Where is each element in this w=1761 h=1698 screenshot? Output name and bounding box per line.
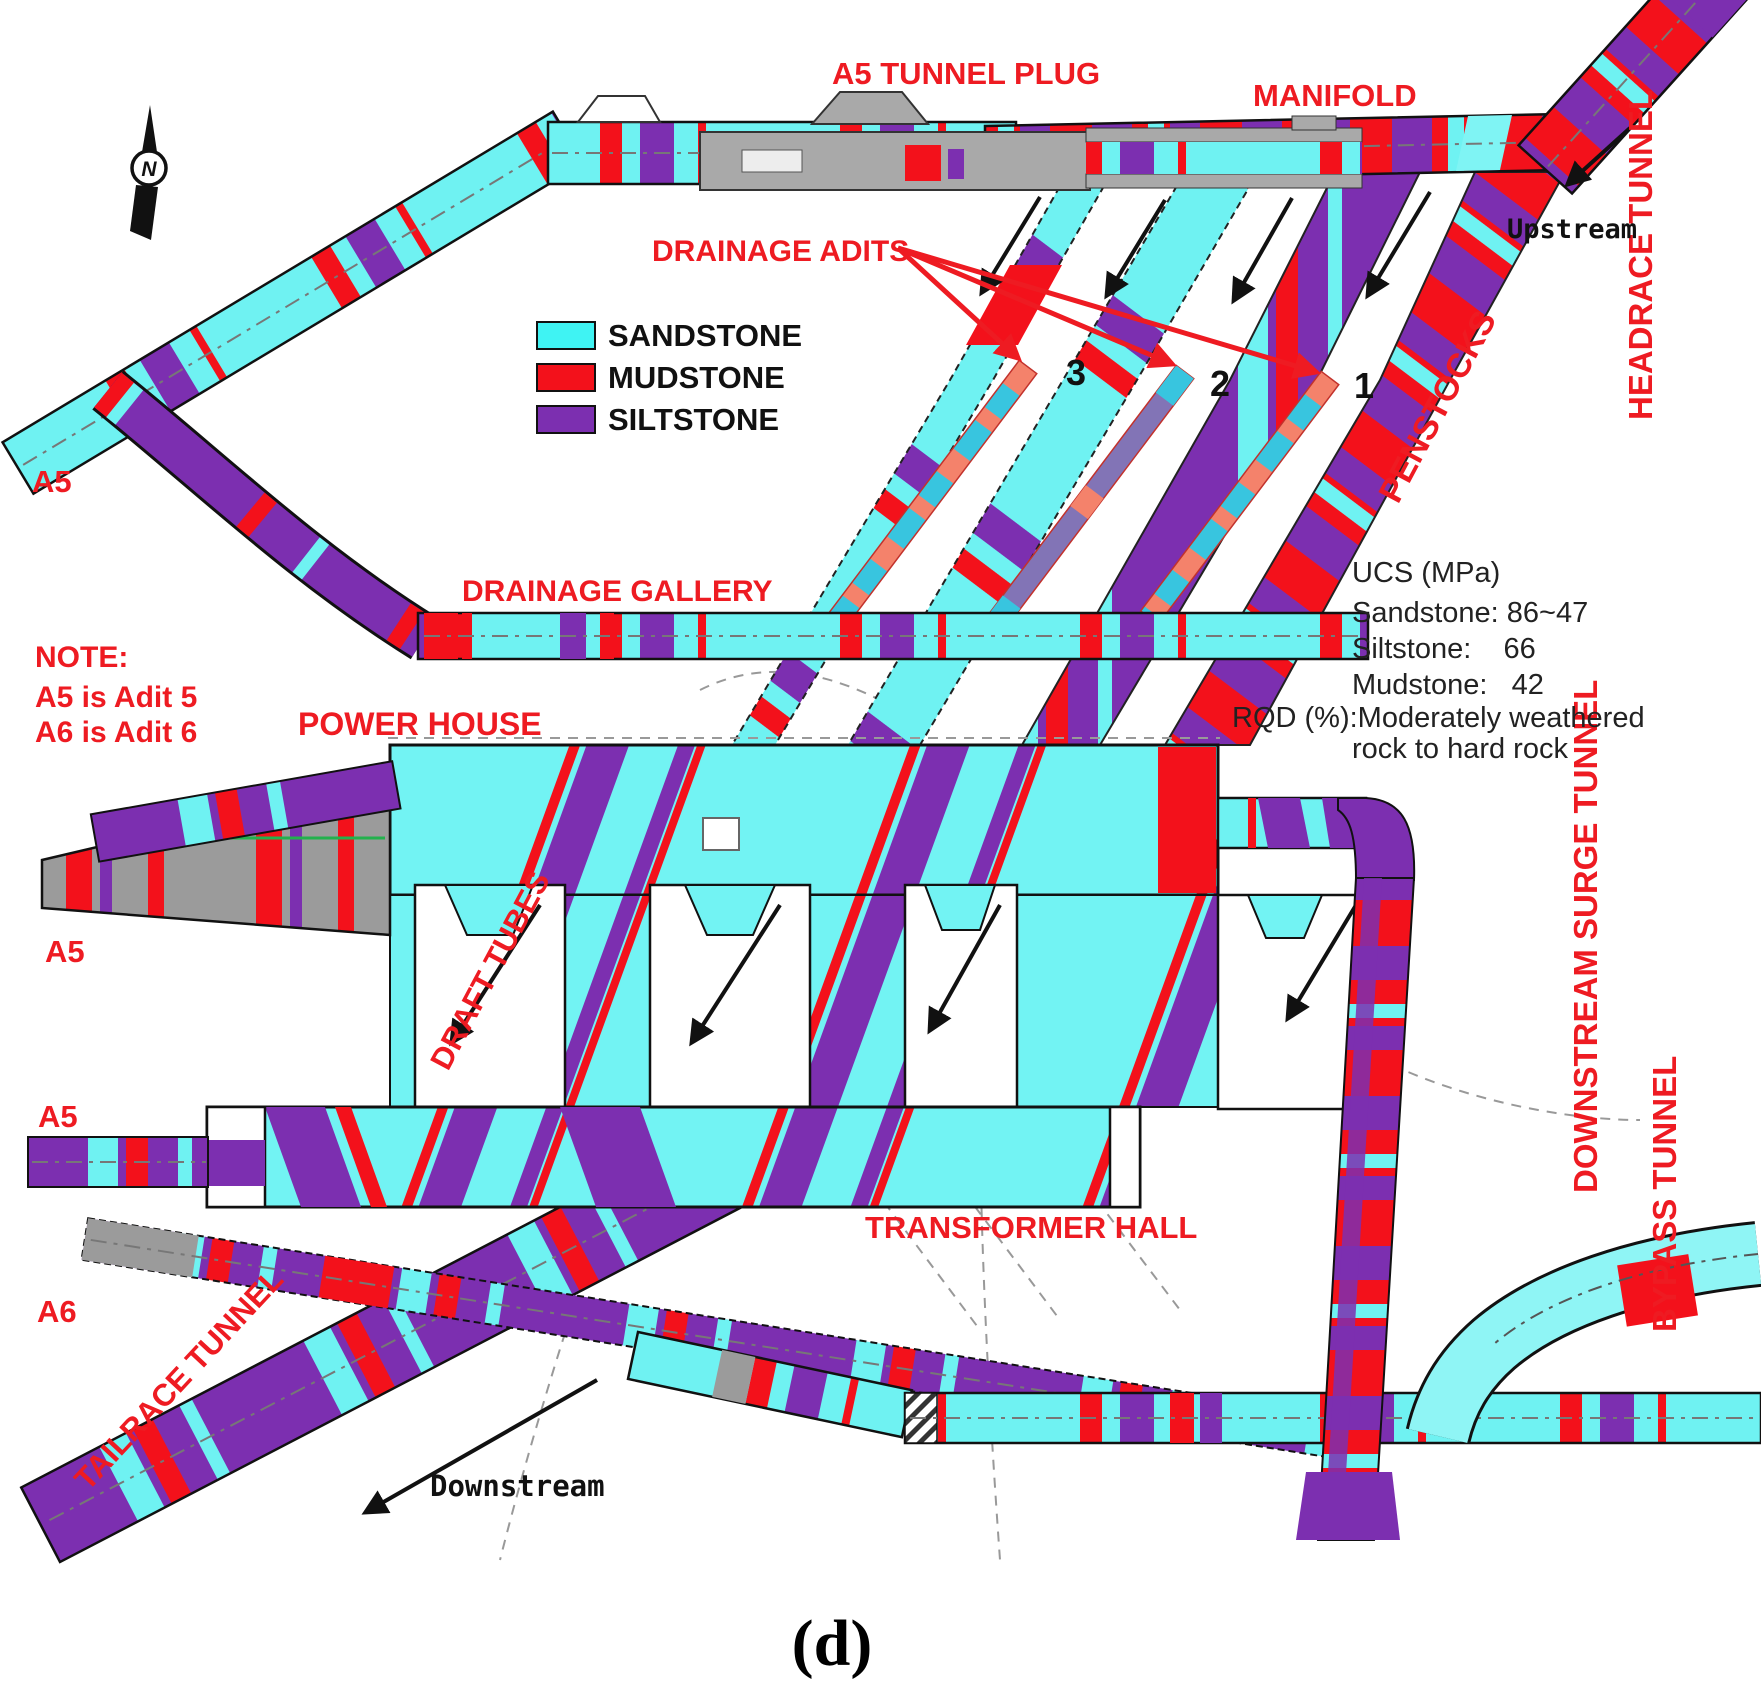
legend-swatch-sandstone	[537, 322, 595, 349]
label-headrace-tunnel: HEADRACE TUNNEL	[1622, 90, 1659, 420]
label-power-house: POWER HOUSE	[298, 706, 542, 742]
rock-info-line-2: Sandstone: 86~47	[1352, 597, 1588, 629]
diagram-canvas: N SANDSTONE MUDSTONE SILTSTONE A5 TUNNEL…	[0, 0, 1761, 1698]
label-drainage-gallery: DRAINAGE GALLERY	[462, 575, 773, 608]
label-downstream-surge-tunnel: DOWNSTREAM SURGE TUNNEL	[1567, 680, 1604, 1193]
figure-caption: (d)	[792, 1607, 873, 1680]
label-drainage-adits: DRAINAGE ADITS	[652, 235, 909, 268]
rock-info-line-5: RQD (%):Moderately weathered	[1232, 702, 1645, 734]
legend-label-sandstone: SANDSTONE	[608, 318, 802, 353]
label-manifold: MANIFOLD	[1253, 78, 1417, 113]
label-upstream: Upstream	[1507, 214, 1637, 245]
legend-label-mudstone: MUDSTONE	[608, 360, 785, 395]
label-transformer-hall: TRANSFORMER HALL	[865, 1210, 1197, 1245]
note-line-3: A6 is Adit 6	[35, 716, 197, 749]
rock-info-line-6: rock to hard rock	[1352, 733, 1568, 765]
label-a5-tunnel-plug: A5 TUNNEL PLUG	[832, 56, 1100, 91]
note-line-1: NOTE:	[35, 641, 128, 674]
adit-number-2: 2	[1210, 363, 1230, 404]
label-a5-middle: A5	[45, 934, 85, 969]
rock-info-line-3: Siltstone: 66	[1352, 633, 1536, 665]
legend-swatch-siltstone	[537, 406, 595, 433]
label-a5-top: A5	[32, 464, 72, 499]
a5-lower-adit-band	[28, 1137, 208, 1187]
rock-info-line-1: UCS (MPa)	[1352, 557, 1500, 589]
legend: SANDSTONE MUDSTONE SILTSTONE	[537, 318, 802, 437]
legend-swatch-mudstone	[537, 364, 595, 391]
transformer-hall-structure	[207, 1107, 1140, 1207]
legend-label-siltstone: SILTSTONE	[608, 402, 779, 437]
label-bypass-tunnel: BYPASS TUNNEL	[1646, 1056, 1683, 1332]
adit-number-1: 1	[1354, 365, 1374, 406]
drainage-gallery-band	[418, 613, 1368, 659]
label-downstream: Downstream	[430, 1469, 605, 1503]
label-a6: A6	[37, 1294, 77, 1329]
tunnel-layout-figure: N SANDSTONE MUDSTONE SILTSTONE A5 TUNNEL…	[0, 0, 1761, 1698]
rock-info-line-4: Mudstone: 42	[1352, 669, 1544, 701]
adit-number-3: 3	[1066, 352, 1086, 393]
note-line-2: A5 is Adit 5	[35, 681, 197, 714]
label-a5-lower: A5	[38, 1099, 78, 1134]
compass-letter: N	[141, 158, 157, 181]
